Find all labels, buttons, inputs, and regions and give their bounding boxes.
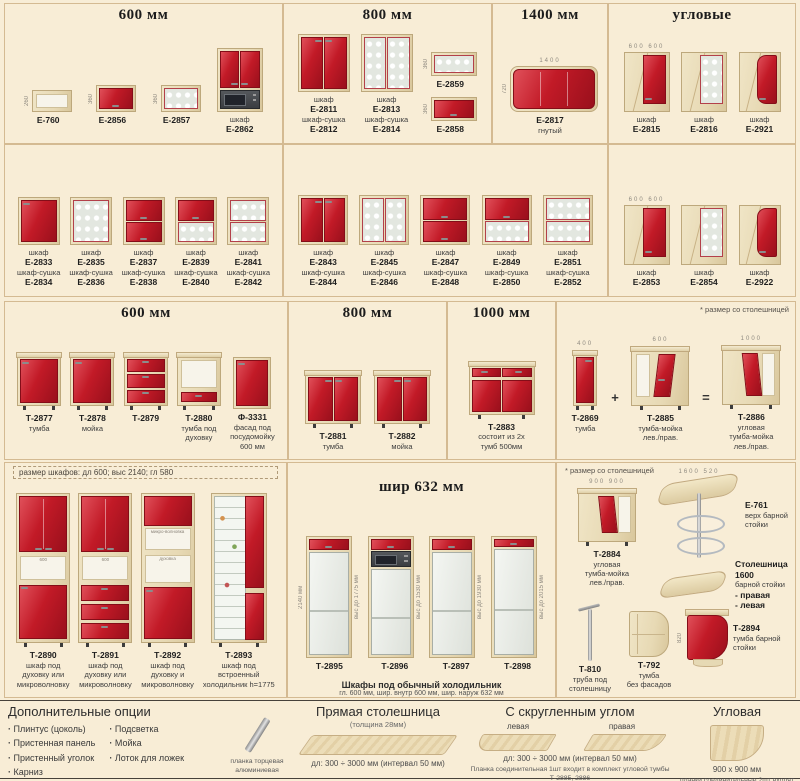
item-label: Е-2858 [437, 124, 464, 135]
base-door1-graphic [70, 356, 114, 406]
catalog-item-main: выс до 1530 мм [368, 536, 422, 658]
catalog-item-main [177, 351, 221, 410]
catalog-item-main: 1000 [722, 336, 780, 409]
bar-slot-e: Т-792тумбабез фасадов [621, 611, 677, 689]
item-label: Е-2859 [437, 79, 464, 90]
straight-countertop-dims: дл: 300 ÷ 3000 мм (интервал 50 мм) [292, 759, 464, 768]
handle [515, 371, 522, 373]
fridge-tall-graphic [491, 536, 537, 658]
alu-strip-icon [244, 717, 270, 753]
cabinet-legs [313, 424, 353, 428]
catalog-item-main [739, 52, 781, 112]
product-desc: стойки [733, 643, 781, 652]
wall-1400-items: 1400720Е-2817гнутый [493, 24, 607, 143]
item-label: Т-2877тумба [26, 413, 53, 451]
product-code: Е-2835 [69, 257, 112, 268]
vertical-dim: выс до 1930 мм [477, 536, 483, 658]
tall-c-graphic: микро-волновкадуховка [141, 493, 195, 643]
glass-door [364, 37, 387, 89]
flip-red-graphic [431, 97, 477, 121]
product-code: Т-2877 [26, 413, 53, 424]
flip-red-graphic [96, 85, 136, 112]
cabinet-legs [640, 406, 682, 410]
cabinet-wrap [629, 611, 669, 657]
catalog-item-main: 1400720 [502, 58, 598, 112]
dimension-label: 600 600 [629, 44, 665, 52]
product-desc: шкаф [746, 115, 773, 124]
section-title-wall-600: 600 мм [5, 4, 282, 24]
product-desc: тумба-мойка [638, 424, 682, 433]
product-code: Е-2813 [365, 104, 408, 115]
item-label: шкафЕ-2839шкаф-сушкаЕ-2840 [174, 248, 217, 288]
item-label: Е-2856 [99, 115, 126, 135]
options-list-2: ПодсветкаМойкаЛоток для ложек [109, 722, 184, 780]
product-code: Е-2815 [633, 124, 660, 135]
product-code: Е-2842 [227, 277, 270, 288]
product-desc: шкаф [546, 248, 589, 257]
glass-door [362, 198, 384, 242]
open-niche: 600 [82, 556, 128, 580]
product-code: Е-2843 [301, 257, 344, 268]
product-code: Е-2837 [122, 257, 165, 268]
catalog-item: Т-2883состоит из 2хтумб 500мм [469, 360, 535, 451]
fridge-graphic [429, 536, 475, 658]
product-desc: духовку или [17, 670, 70, 679]
product-code: Е-761 [745, 500, 788, 511]
cabinet-wrap [233, 357, 271, 409]
product-code: Т-2896 [381, 661, 408, 672]
base-1000-items: Т-2883состоит из 2хтумб 500мм [448, 322, 555, 459]
handle [142, 392, 149, 394]
catalog-item: Т-2880тумба поддуховку [177, 351, 221, 451]
base-oven-graphic [177, 356, 221, 406]
base-600-items: Т-2877тумбаТ-2878мойкаТ-2879Т-2880тумба … [5, 322, 287, 459]
catalog-item: шкафЕ-2811шкаф-сушкаЕ-2812 [298, 34, 350, 135]
straight-countertop-title: Прямая столешница [292, 704, 464, 719]
open-niche [181, 360, 217, 388]
product-desc: шкаф-сушка [17, 268, 60, 277]
cabinet-wrap [482, 195, 532, 245]
base-narrow-graphic [573, 354, 597, 406]
section-title-base-600: 600 мм [5, 302, 287, 322]
panel-fridge-cabinets: шир 632 мм 2140 ммвыс до 1775 ммТ-2895вы… [287, 462, 556, 698]
handle [35, 548, 42, 550]
red-door [245, 496, 263, 588]
rounded-right-label: правая [609, 722, 635, 731]
rounded-note-line2: входит в комплект угловой тумбы Т-2885, … [550, 766, 670, 781]
catalog-item: 1600 520Е-761верх барнойстойки [657, 469, 795, 561]
red-door [301, 198, 323, 242]
cabinet-wrap [657, 477, 741, 561]
cabinet-wrap [298, 34, 350, 92]
cabinet-wrap [420, 195, 470, 245]
product-desc: 600 мм [230, 442, 275, 451]
wall-row2-600-items: шкафЕ-2833шкаф-сушкаЕ-2834шкафЕ-2835шкаф… [5, 145, 282, 296]
item-label: Е-760 [37, 115, 60, 135]
catalog-item-main [420, 195, 470, 245]
product-code: Е-2816 [690, 124, 717, 135]
product-code: Т-2891 [79, 650, 132, 661]
product-desc: духовку [181, 433, 216, 442]
red-door [73, 359, 111, 403]
item-label: шкафЕ-2845шкаф-сушкаЕ-2846 [363, 248, 406, 288]
catalog-item-main [629, 611, 669, 657]
product-code: Т-810 [569, 664, 611, 675]
straight-countertop-image [298, 735, 458, 755]
catalog-item-main: выс до 1930 мм [429, 536, 483, 658]
product-desc: шкаф-сушка [302, 115, 345, 124]
glass-door [546, 221, 590, 243]
catalog-item-main [543, 195, 593, 245]
handle [315, 201, 322, 203]
cabinet-wrap [624, 205, 670, 265]
glass-door [214, 496, 246, 640]
item-label: Т-2880тумба поддуховку [181, 413, 216, 451]
product-code: Ф-3331 [230, 412, 275, 423]
doors2-glass-graphic [361, 34, 413, 92]
handle [101, 626, 108, 628]
glass-door [700, 55, 723, 104]
cabinet-wrap [631, 345, 689, 406]
product-desc: тумба [627, 671, 672, 680]
red-door [432, 539, 472, 550]
vertical-dim: 720 [502, 66, 508, 112]
alu-strip-label: планка торцевая алюминиевая [224, 758, 290, 776]
cabinet-wrap: выс до 1930 мм [429, 536, 483, 658]
doors2-red-graphic [298, 195, 348, 245]
fridge-caption-line2: гл. 600 мм, шир. внутр 600 мм, шир. нару… [288, 690, 555, 697]
option-item: Мойка [109, 736, 184, 750]
product-code: Е-2852 [546, 277, 589, 288]
cabinet-legs [183, 406, 215, 410]
catalog-item-main: 400 [573, 341, 597, 410]
dimension-label: 400 [577, 341, 593, 349]
catalog-item: Т-2881тумба [305, 369, 361, 451]
dimension-label: 900 900 [589, 479, 625, 487]
catalog-item: 400Т-2869тумба [572, 341, 599, 451]
product-code: Е-2856 [99, 115, 126, 126]
red-door [309, 539, 349, 550]
product-code: Е-2838 [122, 277, 165, 288]
product-desc: тумба [26, 424, 53, 433]
red-door [236, 360, 268, 406]
cabinet-wrap [124, 351, 168, 406]
catalog-item-main [298, 195, 348, 245]
product-desc: верх барной [745, 511, 788, 520]
red-door [643, 55, 666, 104]
corner-countertop-title: Угловая [680, 704, 794, 719]
fridge-caption: Шкафы под обычный холодильник гл. 600 мм… [288, 680, 555, 697]
cabinet-wrap [305, 369, 361, 424]
catalog-item: шкафЕ-2845шкаф-сушкаЕ-2846 [359, 195, 409, 288]
item-label: Т-2882мойка [389, 431, 416, 451]
product-code: Е-2812 [302, 124, 345, 135]
product-code: Е-2840 [174, 277, 217, 288]
section-title-base-800: 800 мм [289, 302, 446, 322]
catalog-item-main: 600 [78, 493, 132, 647]
item-label: Т-2891шкаф поддуховку илимикроволновку [79, 650, 132, 689]
cabinet-legs [86, 643, 125, 647]
section-title-wall-1400: 1400 мм [493, 4, 607, 24]
additional-options-block: Дополнительные опции Плинтус (цоколь)При… [8, 704, 224, 780]
panel-tall-cabinets: размер шкафов: дл 600; выс 2140; гл 580 … [4, 462, 287, 698]
catalog-item-main [374, 369, 430, 428]
product-code: Е-2854 [690, 277, 717, 288]
rounded-right-image [583, 734, 667, 751]
glass-door [230, 222, 266, 243]
options-list-1: Плинтус (цоколь)Пристенная панельПристен… [8, 722, 95, 780]
product-desc: шкаф [302, 95, 345, 104]
item-label: шкафЕ-2813шкаф-сушкаЕ-2814 [365, 95, 408, 135]
alu-strip-block: планка торцевая алюминиевая [224, 716, 290, 776]
cabinet-wrap [681, 205, 727, 265]
handle [107, 548, 114, 550]
product-desc: шкаф-сушка [485, 268, 528, 277]
item-label: шкафЕ-2815 [633, 115, 660, 135]
alu-strip-line1: планка торцевая [230, 758, 283, 765]
red-door [81, 585, 129, 601]
product-code: Е-2836 [69, 277, 112, 288]
cabinet-wrap: выс до 1530 мм [368, 536, 422, 658]
product-code: Е-2847 [424, 257, 467, 268]
product-desc: тумба [320, 442, 347, 451]
cabinet-legs [219, 643, 259, 647]
flip2-red-graphic [123, 197, 165, 245]
bar-slot-c: Столешница 1600барной стойки- правая- ле… [655, 559, 795, 611]
handle [325, 201, 332, 203]
wall-800-items: шкафЕ-2811шкаф-сушкаЕ-2812шкафЕ-2813шкаф… [284, 24, 491, 143]
glass-door [434, 55, 474, 73]
item-label: шкафЕ-2922 [746, 268, 773, 288]
catalog-item-main [305, 369, 361, 428]
cabinet-legs [576, 406, 593, 410]
item-label: Е-761верх барнойстойки [745, 500, 788, 529]
niche-label: микро-волновка [146, 530, 190, 535]
product-code: - правая [735, 590, 795, 601]
door-seam [567, 72, 568, 106]
bar-countertop-graphic [655, 569, 731, 601]
alu-strip-line2: алюминиевая [235, 767, 279, 774]
catalog-item-main: 900 900 [578, 479, 636, 546]
product-desc: шкаф [363, 248, 406, 257]
product-code: Е-2833 [17, 257, 60, 268]
product-code: Е-2841 [227, 257, 270, 268]
vertical-dim: 360 [88, 85, 94, 112]
product-desc: стойки [745, 520, 788, 529]
red-door [403, 377, 428, 421]
cabinet-wrap: 360 [153, 85, 201, 112]
product-desc: шкаф-сушка [227, 268, 270, 277]
panel-wall-800: 800 мм шкафЕ-2811шкаф-сушкаЕ-2812шкафЕ-2… [283, 3, 492, 144]
product-desc: духовку и [141, 670, 194, 679]
product-desc: шкаф [633, 115, 660, 124]
cabinet-wrap: 600 [16, 493, 70, 643]
item-label: шкафЕ-2837шкаф-сушкаЕ-2838 [122, 248, 165, 288]
red-door [576, 357, 594, 403]
red-door [643, 208, 666, 257]
catalog-item-main [298, 34, 350, 92]
bar-top-graphic [657, 477, 741, 561]
options-columns: Плинтус (цоколь)Пристенная панельПристен… [8, 722, 224, 780]
product-code: Столешница 1600 [735, 559, 795, 580]
bar-countertop [658, 570, 729, 599]
door-seam [43, 499, 44, 549]
base-1000-graphic [469, 365, 535, 415]
handle [140, 217, 147, 219]
corner-countertop-size: 900 х 900 мм [680, 765, 794, 774]
catalog-item-main: 360 [88, 85, 136, 112]
openbox-graphic [32, 90, 72, 112]
catalog-item-main: выс до 2015 мм [491, 536, 545, 658]
catalog-item: шкафЕ-2813шкаф-сушкаЕ-2814 [361, 34, 413, 135]
product-desc: шкаф-сушка [69, 268, 112, 277]
item-label: Т-2890шкаф поддуховку илимикроволновку [17, 650, 70, 689]
base-corner-L-graphic [722, 349, 780, 405]
item-label: Т-810труба подстолешницу [569, 664, 611, 693]
catalog-item-main [681, 52, 727, 112]
glass-door [220, 90, 260, 109]
cabinet-wrap [298, 195, 348, 245]
wall-row2-corner-items: 600 600шкафЕ-2853шкафЕ-2854шкафЕ-2922 [609, 145, 795, 296]
catalog-item-main [17, 351, 61, 410]
cabinet-wrap [655, 569, 731, 601]
product-desc: без фасадов [627, 680, 672, 689]
catalog-item: выс до 1530 ммТ-2896 [368, 536, 422, 672]
cabinet-wrap [361, 34, 413, 92]
divider-line-top [0, 700, 800, 701]
catalog-item: шкафЕ-2816 [681, 52, 727, 135]
section-title-wall-800: 800 мм [284, 4, 491, 24]
glass-door [371, 551, 411, 567]
cabinet-wrap: 2140 ммвыс до 1775 мм [298, 536, 360, 658]
base-doors2-graphic [305, 374, 361, 424]
open-niche [636, 354, 650, 397]
product-code: Т-2892 [141, 650, 194, 661]
catalog-item: шкафЕ-2847шкаф-сушкаЕ-2848 [420, 195, 470, 288]
niche-dim: 600 [21, 558, 65, 563]
rounded-countertop-note: Планка соединительная 1шт входит в компл… [466, 766, 674, 781]
glass-door [164, 88, 198, 109]
rounded-left-label: левая [507, 722, 529, 731]
panel-wall-row2-600: шкафЕ-2833шкаф-сушкаЕ-2834шкафЕ-2835шкаф… [4, 144, 283, 297]
item-label: шкафЕ-2851шкаф-сушкаЕ-2852 [546, 248, 589, 288]
section-title-fridge: шир 632 мм [288, 463, 555, 496]
base-corner-straight-graphic [631, 350, 689, 406]
handle [325, 380, 332, 382]
catalog-item: 600Т-2885тумба-мойкалев./прав. [631, 337, 689, 451]
product-desc: шкаф [690, 115, 717, 124]
catalog-item-main: 1600 520 [657, 469, 741, 561]
catalog-item: 360Е-2859 [423, 52, 477, 90]
catalog-item: Т-792тумбабез фасадов [621, 611, 677, 689]
handle [195, 395, 202, 397]
cabinet-wrap [123, 197, 165, 245]
wire-basket [677, 537, 725, 555]
base-doors2-graphic [374, 374, 430, 424]
catalog-item-main [227, 197, 269, 245]
red-door [334, 377, 359, 421]
cabinet-wrap [469, 360, 535, 415]
product-code: Т-2893 [203, 650, 275, 661]
countertop-size-note: * размер со столешницей [700, 305, 789, 314]
catalog-item: + [610, 390, 620, 451]
item-label: шкафЕ-2811шкаф-сушкаЕ-2812 [302, 95, 345, 135]
product-desc: тумба под [181, 424, 216, 433]
catalog-item-main: + [610, 390, 620, 451]
item-label: шкафЕ-2841шкаф-сушкаЕ-2842 [227, 248, 270, 288]
panel-base-1000: 1000 мм Т-2883состоит из 2хтумб 500мм [447, 301, 556, 460]
catalog-item: микро-волновкадуховкаТ-2892шкаф поддухов… [141, 493, 195, 689]
glass-door [385, 198, 407, 242]
catalog-item-main [233, 357, 271, 409]
doors2-glass-graphic [359, 195, 409, 245]
cabinet-wrap [359, 195, 409, 245]
catalog-item-main [211, 493, 267, 647]
product-code: Е-2846 [363, 277, 406, 288]
catalog-item: Т-2879 [124, 351, 168, 451]
product-desc: шкаф под [79, 661, 132, 670]
handle [645, 98, 652, 100]
corner-red-graphic [624, 205, 670, 265]
product-desc: шкаф-сушка [424, 268, 467, 277]
cabinet-wrap [211, 493, 267, 643]
catalog-item-main: = [701, 390, 711, 451]
base-front-graphic [233, 357, 271, 409]
product-code: Т-2894 [733, 623, 781, 634]
cabinet-wrap [374, 369, 430, 424]
product-code: Т-2879 [132, 413, 159, 424]
panel-wall-corner: угловые 600 600шкафЕ-2815шкафЕ-2816шкафЕ… [608, 3, 796, 144]
cabinet-wrap: микро-волновкадуховка [141, 493, 195, 643]
red-door [472, 380, 502, 412]
red-door [324, 198, 346, 242]
product-desc: труба под [569, 675, 611, 684]
option-item: Карниз [8, 765, 95, 779]
product-desc: шкаф [746, 268, 773, 277]
product-code: Т-2897 [443, 661, 470, 672]
pole [588, 609, 592, 661]
bar-cabinet-graphic [685, 609, 729, 667]
item-label: Т-2879 [132, 413, 159, 451]
corner-radius-graphic [739, 205, 781, 265]
red-door [301, 37, 324, 89]
product-code: Т-2869 [572, 413, 599, 424]
handle [585, 360, 592, 362]
catalog-item: Ф-3331фасад подпосудомойку600 мм [230, 357, 275, 451]
item-label: шкафЕ-2853 [633, 268, 660, 288]
cabinet-wrap [739, 205, 781, 265]
rounded-countertop-dims: дл: 300 ÷ 3000 мм (интервал 50 мм) [466, 754, 674, 763]
catalog-item: шкафЕ-2833шкаф-сушкаЕ-2834 [17, 197, 60, 288]
product-code: Е-2921 [746, 124, 773, 135]
item-label: Е-2817гнутый [536, 115, 563, 135]
red-door [371, 539, 411, 550]
product-code: Т-2880 [181, 413, 216, 424]
product-desc: барной стойки [735, 580, 795, 589]
panel-base-corner: * размер со столешницей 400Т-2869тумба+6… [556, 301, 796, 460]
product-code: Е-2848 [424, 277, 467, 288]
catalog-item: 1000Т-2886угловаятумба-мойкалев./прав. [722, 336, 780, 451]
catalog-item-main: 360 [423, 97, 477, 121]
open-niche [36, 94, 68, 108]
panel-base-600: 600 мм Т-2877тумбаТ-2878мойкаТ-2879Т-288… [4, 301, 288, 460]
handle [658, 379, 665, 381]
panel-wall-row2-corner: 600 600шкафЕ-2853шкафЕ-2854шкафЕ-2922 [608, 144, 796, 297]
catalog-item-main [70, 351, 114, 410]
open-shelf-graphic [629, 611, 669, 657]
catalog-item: шкафЕ-2837шкаф-сушкаЕ-2838 [122, 197, 165, 288]
cabinet-wrap: 820 [677, 609, 729, 667]
